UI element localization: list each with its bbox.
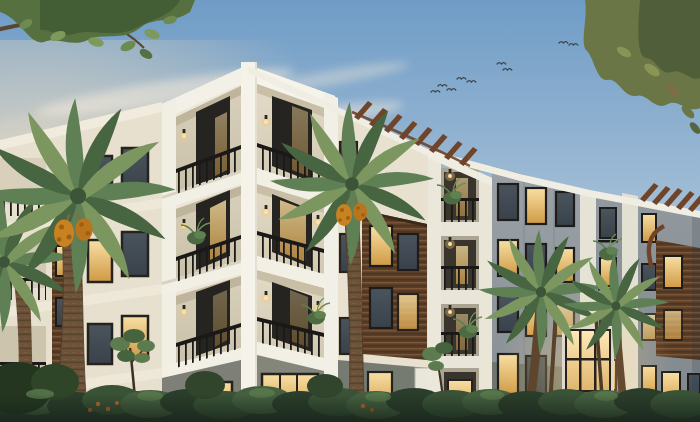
railing-handrail [441,266,479,269]
dark-window [498,184,518,220]
lit-window [526,188,546,224]
dark-window [88,324,112,364]
floor-slab [441,222,479,236]
dark-window [370,288,392,328]
balcony-railing [441,268,479,290]
section-balcony-tower [428,150,492,422]
balcony-railing [441,200,479,222]
rendering [0,0,700,422]
corner-tower-right-face [257,68,338,422]
lit-window [664,310,682,340]
tree-foliage [134,353,150,363]
bottom-vignette [0,394,700,422]
tree-foliage [428,361,444,371]
tower-corner-column [241,62,257,422]
lit-window [398,294,418,330]
corner-tower-left-face [162,68,241,422]
dark-window [398,234,418,270]
dark-window [600,208,616,238]
white-pier [428,150,441,422]
tree-foliage [137,340,155,352]
floor-slab [441,290,479,304]
white-pier [479,172,492,422]
tree-foliage [117,350,135,362]
window-mullion [566,358,610,361]
edge-shade [692,213,700,422]
floor-slab [441,356,479,368]
tree-foliage [435,342,453,354]
scene-canvas [0,0,700,422]
dark-window [556,192,574,226]
lit-window [664,256,682,288]
corner-edge-shade [255,62,257,422]
